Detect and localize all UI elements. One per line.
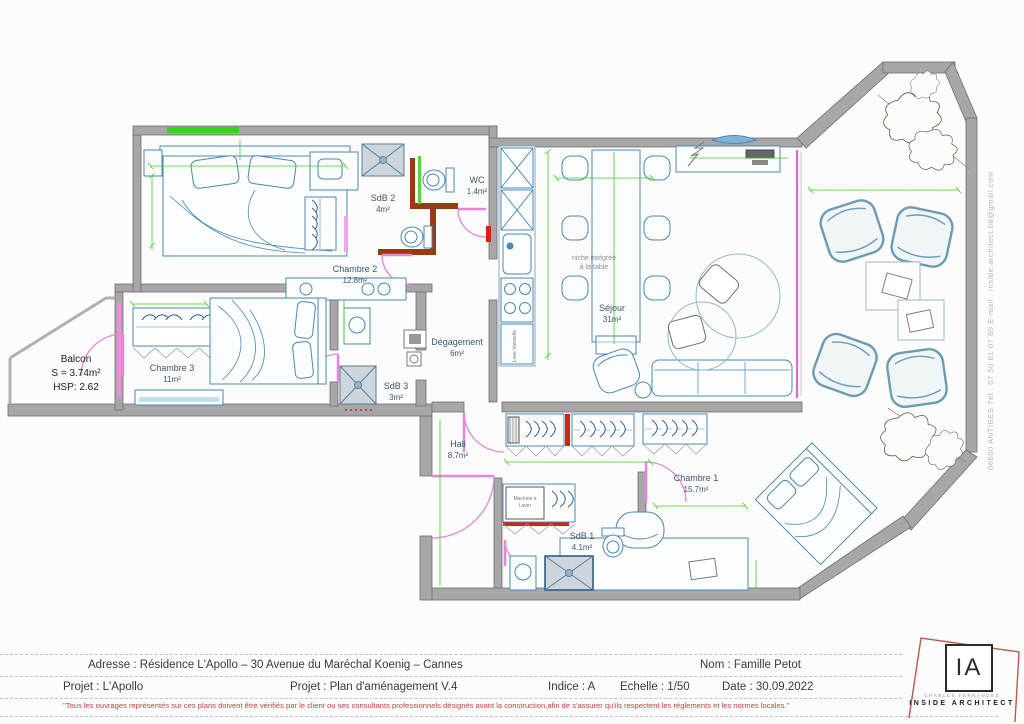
title-block: Adresse : Résidence L'Apollo – 30 Avenue… (0, 654, 1024, 724)
title-block-row-2: Projet : L'Apollo Projet : Plan d'aménag… (0, 676, 902, 699)
balcony-surface: S = 3.74m² (51, 368, 101, 379)
sink-sdb2 (310, 152, 358, 190)
area-degagement: 6m² (450, 349, 464, 358)
glass-wc (418, 156, 421, 204)
area-sejour: 31m² (603, 315, 622, 324)
door-entry (432, 476, 494, 538)
toilet-sdb1 (602, 528, 624, 557)
door-sejour-hall (464, 412, 504, 452)
window-bench-chambre3 (135, 390, 223, 405)
architect-logo: IA CHARLES FERNANDEZ INSIDE ARCHITECT (903, 626, 1021, 722)
sink-sdb3 (344, 308, 370, 344)
label-chambre3: Chambre 3 (150, 363, 195, 373)
title-block-row-3: "Tous les ouvrages représentés sur ces p… (0, 698, 998, 717)
door-wc (458, 209, 486, 237)
sofa (635, 360, 792, 398)
label-sdb3: SdB 3 (384, 381, 409, 391)
area-chambre1: 15.7m² (684, 485, 709, 494)
area-chambre3: 11m² (163, 375, 181, 384)
index-field: Indice : A (548, 681, 595, 693)
degagement-shelf (404, 330, 426, 366)
dishwasher-label: Lave Vaisselle (512, 330, 518, 362)
toilet-sdb2 (401, 226, 432, 248)
balcony-glazing (117, 302, 121, 398)
area-sdb3: 3m² (389, 393, 403, 402)
label-wc: WC (470, 175, 485, 185)
shower-sdb1 (545, 556, 593, 590)
area-sdb1: 4.1m² (572, 543, 593, 552)
logo-architect-name: CHARLES FERNANDEZ (903, 693, 1021, 698)
closet-chambre1 (643, 414, 707, 454)
label-hall: Hall (450, 439, 466, 449)
shower-sdb2 (362, 144, 404, 176)
project-doc-field: Projet : Plan d'aménagement V.4 (290, 681, 457, 693)
label-sejour: Séjour (599, 303, 625, 313)
closet-hall-2 (572, 414, 634, 456)
shower-sdb3 (340, 366, 376, 411)
disclaimer-text: "Tous les ouvrages représentés sur ces p… (63, 701, 789, 710)
label-chambre2: Chambre 2 (333, 264, 378, 274)
label-chambre1: Chambre 1 (674, 473, 719, 483)
area-sdb2: 4m² (376, 205, 390, 214)
area-wc: 1.4m² (467, 187, 488, 196)
label-degagement: Dégagement (431, 337, 483, 347)
niche-note-line2: à la table (580, 264, 609, 271)
date-field: Date : 30.09.2022 (722, 681, 813, 693)
rug-reading-corner (667, 254, 780, 370)
closet-washer (503, 484, 575, 534)
bed-chambre3 (210, 298, 326, 384)
architect-contact-strip: 06600 ANTIBES Tél : 07 50 61 07 69 E-mai… (986, 66, 995, 470)
washer-label-line2: Laver (519, 503, 532, 509)
logo-monogram: IA (956, 654, 983, 682)
label-sdb2: SdB 2 (371, 193, 396, 203)
logo-architect-title: INSIDE ARCHITECT (903, 700, 1021, 707)
floor-plan-page: Chambre 2 12.8m² SdB 2 4m² WC 1.4m² Séjo… (0, 0, 1024, 724)
logo-monogram-box: IA (945, 644, 993, 692)
toilet-wc (423, 168, 454, 192)
scale-field: Echelle : 1/50 (620, 681, 690, 693)
client-name-field: Nom : Famille Petot (700, 659, 801, 671)
address-field: Adresse : Résidence L'Apollo – 30 Avenue… (88, 659, 463, 671)
label-sdb1: SdB 1 (570, 531, 595, 541)
window-green-chambre2 (167, 127, 239, 133)
project-field: Projet : L'Apollo (63, 681, 143, 693)
terrace (809, 68, 971, 475)
kitchen-sink (503, 234, 531, 274)
sink-sdb1 (510, 556, 536, 590)
area-chambre2: 12.8m² (343, 276, 368, 285)
balcony-labels: Balcon S = 3.74m² HSP: 2.62 (51, 354, 101, 393)
washer-label-line1: Machine à (513, 496, 536, 502)
floor-plan-drawing: Chambre 2 12.8m² SdB 2 4m² WC 1.4m² Séjo… (0, 0, 1024, 652)
closet-hall-1 (506, 414, 564, 456)
terrace-tables (866, 262, 944, 340)
area-hall: 8.7m² (448, 451, 469, 460)
niche-note-line1: niche intégrée (572, 255, 616, 262)
title-block-row-1: Adresse : Résidence L'Apollo – 30 Avenue… (0, 654, 902, 677)
balcony-height: HSP: 2.62 (53, 382, 99, 393)
balcony-name: Balcon (61, 354, 92, 365)
